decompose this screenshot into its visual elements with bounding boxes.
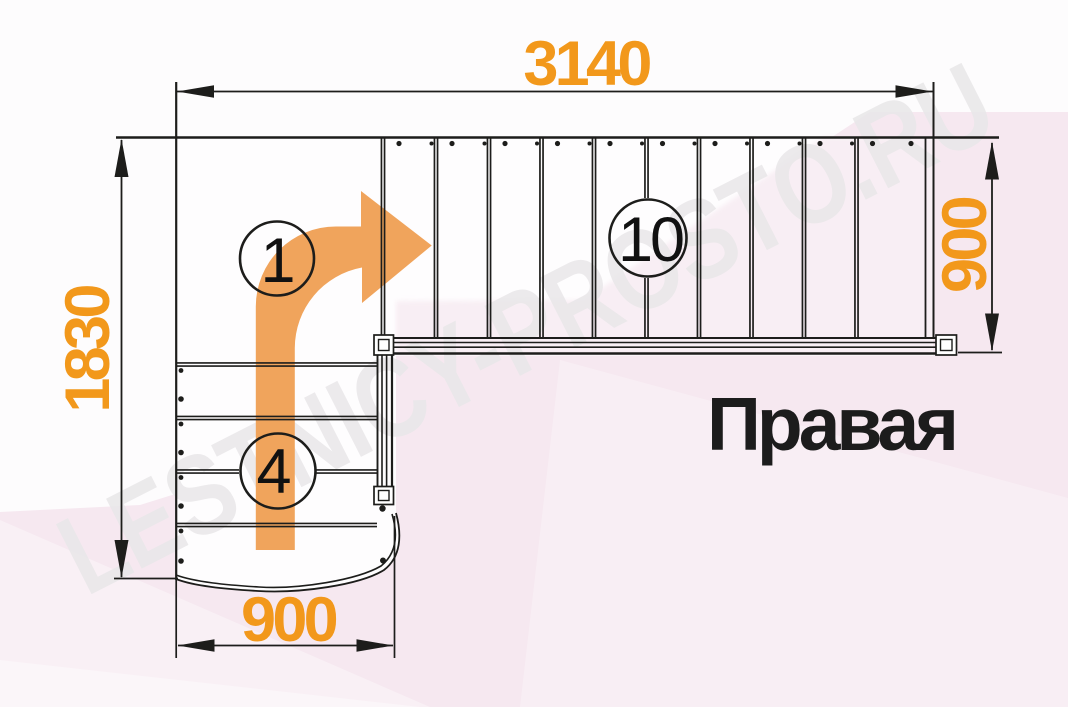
svg-text:10: 10 xyxy=(618,205,683,275)
svg-text:900: 900 xyxy=(241,585,337,655)
svg-text:900: 900 xyxy=(930,197,1000,293)
svg-text:Правая: Правая xyxy=(707,382,955,466)
svg-text:1: 1 xyxy=(260,226,295,296)
svg-text:1830: 1830 xyxy=(53,286,123,413)
svg-text:4: 4 xyxy=(256,437,291,507)
svg-text:3140: 3140 xyxy=(523,29,650,99)
